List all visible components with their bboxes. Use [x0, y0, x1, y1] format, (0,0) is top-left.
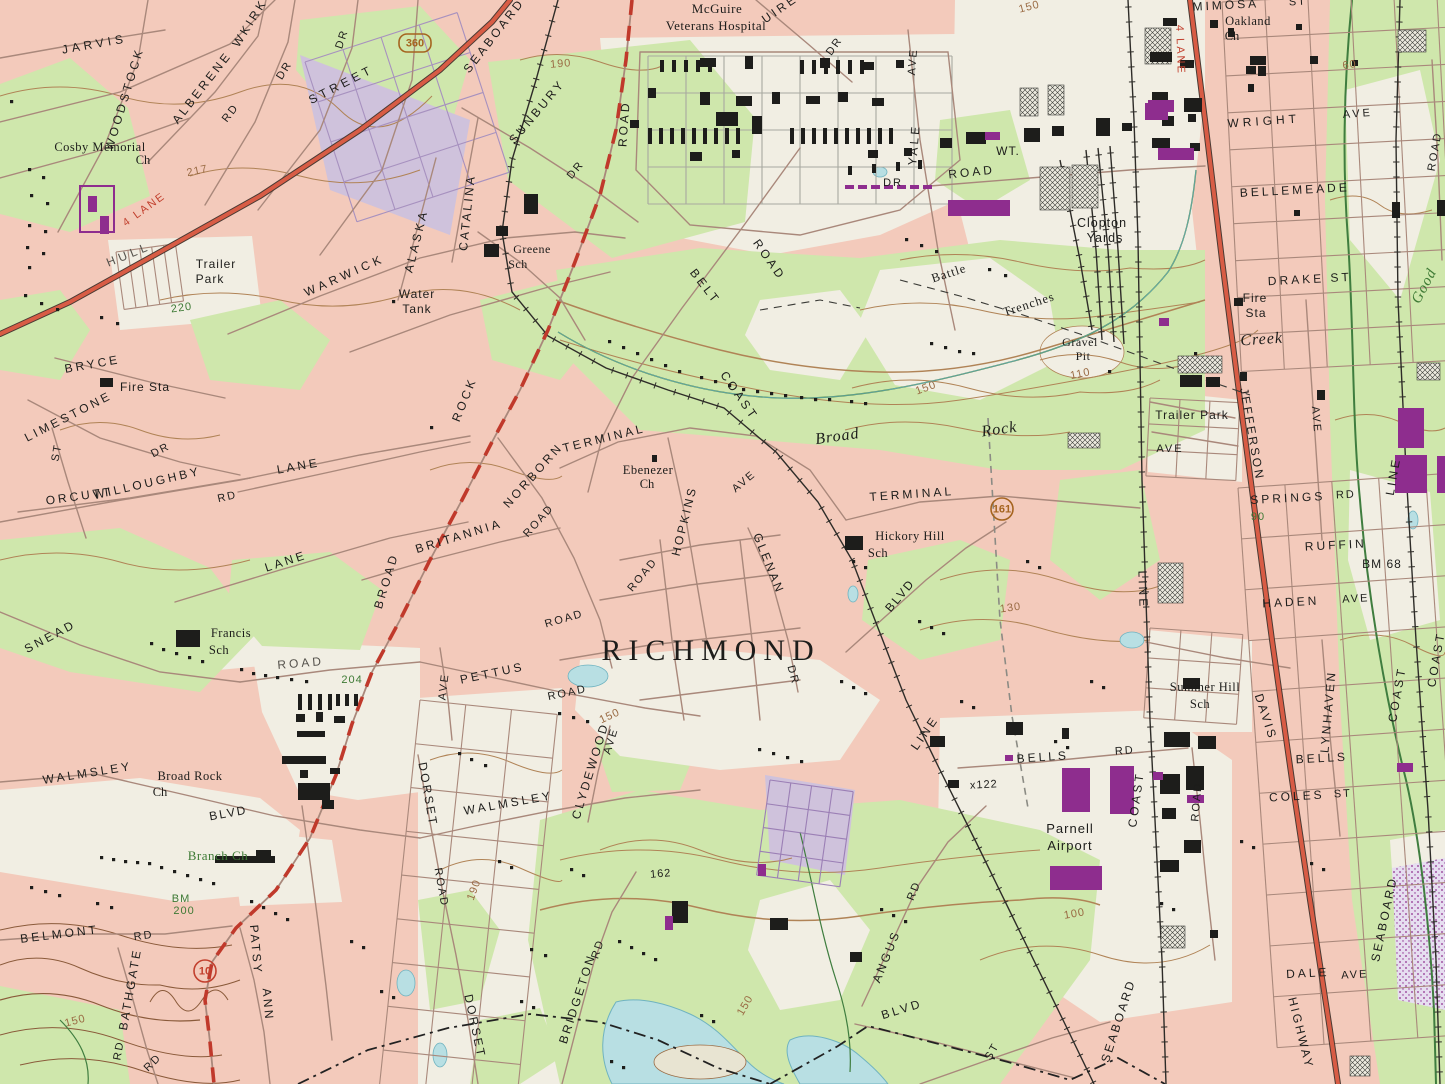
map-label: Hickory Hill: [875, 529, 945, 543]
building: [1210, 20, 1218, 28]
house-dot: [960, 700, 963, 703]
house-dot: [892, 914, 895, 917]
building-row-unit: [834, 128, 838, 144]
house-dot: [162, 648, 165, 651]
building: [298, 783, 330, 800]
map-label: 162: [650, 867, 672, 881]
house-dot: [124, 860, 127, 863]
large-building-hatched: [1417, 363, 1440, 380]
map-label: WT.: [996, 144, 1020, 158]
house-dot: [40, 302, 43, 305]
building: [1184, 840, 1201, 853]
building: [1437, 200, 1445, 216]
house-dot: [582, 874, 585, 877]
map-label: Trailer: [196, 257, 237, 271]
house-dot: [1240, 840, 1243, 843]
building: [752, 116, 762, 134]
building: [1296, 24, 1302, 30]
building: [1150, 52, 1172, 62]
building-row-unit: [345, 694, 349, 706]
house-dot: [1102, 686, 1105, 689]
house-dot: [712, 1020, 715, 1023]
map-label: 90: [1251, 511, 1265, 523]
building-row-unit: [725, 128, 729, 144]
building-row-unit: [856, 128, 860, 144]
map-label: DALE: [1286, 965, 1330, 981]
building-row-unit: [800, 60, 804, 74]
building-photorevised: [1397, 763, 1413, 772]
house-dot: [700, 376, 703, 379]
house-dot: [305, 680, 308, 683]
house-dot: [758, 748, 761, 751]
railroad-tick: [1095, 155, 1101, 156]
building-row-unit: [790, 128, 794, 144]
building-photorevised: [985, 132, 1000, 140]
building: [838, 92, 848, 102]
map-label: Trailer Park: [1155, 408, 1229, 422]
building-photorevised: [758, 864, 766, 876]
house-dot: [498, 860, 501, 863]
map-label: LINE: [1135, 570, 1150, 609]
building-row-unit: [845, 128, 849, 144]
building-row-unit: [867, 128, 871, 144]
house-dot: [654, 958, 657, 961]
map-label: Fire Sta: [120, 380, 170, 394]
building-row-unit: [824, 60, 828, 74]
building: [1250, 56, 1266, 65]
building: [322, 800, 334, 809]
railroad-tick: [1101, 214, 1107, 215]
building: [1258, 66, 1266, 76]
house-dot: [1194, 352, 1197, 355]
building: [330, 768, 340, 774]
pond: [568, 665, 608, 687]
building: [1024, 128, 1040, 142]
building: [690, 152, 702, 161]
house-dot: [664, 364, 667, 367]
house-dot: [920, 244, 923, 247]
map-label: Ch: [640, 477, 655, 491]
building: [100, 378, 113, 387]
house-dot: [110, 906, 113, 909]
house-dot: [610, 1060, 613, 1063]
building: [496, 226, 508, 236]
house-dot: [290, 678, 293, 681]
house-dot: [240, 668, 243, 671]
building-photorevised: [100, 216, 109, 234]
map-label: AVE: [1341, 968, 1369, 981]
building-photorevised: [1062, 768, 1090, 812]
route-badge-number: 360: [406, 38, 424, 50]
house-dot: [1172, 908, 1175, 911]
pond: [1120, 632, 1144, 648]
building-row-unit: [889, 128, 893, 144]
building-photorevised: [910, 185, 919, 189]
large-building-hatched: [1020, 88, 1038, 116]
building: [1246, 66, 1256, 74]
building-row-unit: [696, 60, 700, 72]
house-dot: [1252, 846, 1255, 849]
map-label: DR: [883, 177, 903, 189]
building-row-unit: [684, 60, 688, 72]
map-label: Pit: [1076, 349, 1091, 363]
house-dot: [622, 346, 625, 349]
building: [316, 712, 323, 722]
house-dot: [262, 906, 265, 909]
large-building-hatched: [1072, 165, 1098, 208]
building-photorevised: [1005, 755, 1013, 761]
house-dot: [905, 238, 908, 241]
house-dot: [392, 300, 395, 303]
house-dot: [800, 760, 803, 763]
building-row-unit: [692, 128, 696, 144]
house-dot: [392, 996, 395, 999]
house-dot: [642, 952, 645, 955]
map-label: COLES: [1269, 788, 1325, 805]
house-dot: [173, 870, 176, 873]
building: [1392, 202, 1400, 218]
building: [1062, 728, 1069, 739]
building-row-unit: [708, 60, 712, 72]
route-badge-number: 10: [199, 966, 211, 978]
house-dot: [756, 390, 759, 393]
house-dot: [840, 680, 843, 683]
house-dot: [935, 250, 938, 253]
large-building-hatched: [1161, 926, 1185, 948]
house-dot: [944, 346, 947, 349]
building: [850, 952, 862, 962]
house-dot: [586, 720, 589, 723]
building: [524, 194, 538, 214]
building: [1162, 808, 1176, 819]
building: [1122, 123, 1132, 131]
building: [772, 92, 780, 104]
house-dot: [942, 632, 945, 635]
building: [770, 918, 788, 930]
house-dot: [484, 764, 487, 767]
map-label: AVE: [1156, 443, 1183, 455]
house-dot: [30, 886, 33, 889]
house-dot: [678, 370, 681, 373]
map-label: McGuire: [692, 1, 742, 16]
house-dot: [850, 400, 853, 403]
house-dot: [988, 268, 991, 271]
house-dot: [772, 752, 775, 755]
map-label: Sta: [1245, 306, 1266, 320]
map-label: Sch: [508, 257, 528, 271]
building: [1152, 138, 1170, 148]
house-dot: [136, 861, 139, 864]
house-dot: [96, 902, 99, 905]
building: [940, 138, 952, 148]
building-row-unit: [298, 694, 302, 710]
house-dot: [1054, 740, 1057, 743]
house-dot: [570, 868, 573, 871]
house-dot: [864, 402, 867, 405]
map-label: Oakland: [1225, 14, 1271, 28]
building: [1210, 930, 1218, 938]
map-label: RD: [1114, 744, 1135, 757]
lake-island: [654, 1045, 746, 1079]
map-label: Sch: [1190, 697, 1211, 711]
building: [1240, 372, 1247, 381]
building: [966, 132, 986, 144]
map-label: ST: [1334, 788, 1353, 801]
house-dot: [650, 358, 653, 361]
building-photorevised: [948, 200, 1010, 216]
topo-map-svg: 36016110JARVISWOODSTOCKALBERENERDWKIRKDR…: [0, 0, 1445, 1084]
map-label: Greene: [513, 242, 551, 256]
house-dot: [532, 1006, 535, 1009]
map-label: 190: [550, 57, 572, 71]
building-row-unit: [801, 128, 805, 144]
house-dot: [714, 380, 717, 383]
large-building-hatched: [1040, 167, 1070, 210]
map-label: 4 LANE: [1173, 25, 1187, 75]
topo-map-scan: 36016110JARVISWOODSTOCKALBERENERDWKIRKDR…: [0, 0, 1445, 1084]
map-label: Ch: [153, 785, 168, 799]
house-dot: [112, 858, 115, 861]
house-dot: [958, 350, 961, 353]
map-label: Water: [399, 287, 436, 301]
building: [736, 96, 752, 106]
house-dot: [1038, 566, 1041, 569]
map-label: Yards: [1087, 231, 1124, 245]
house-dot: [1090, 680, 1093, 683]
building: [732, 150, 740, 158]
map-label: BM 68: [1362, 557, 1402, 571]
house-dot: [918, 620, 921, 623]
house-dot: [160, 866, 163, 869]
house-dot: [510, 866, 513, 869]
house-dot: [26, 246, 29, 249]
house-dot: [770, 392, 773, 395]
large-building-hatched: [1048, 85, 1064, 115]
map-label: Broad Rock: [157, 769, 222, 783]
house-dot: [44, 230, 47, 233]
house-dot: [572, 716, 575, 719]
house-dot: [430, 426, 433, 429]
railroad-tick: [1084, 157, 1090, 158]
building-photorevised: [1145, 103, 1168, 120]
house-dot: [264, 674, 267, 677]
building-row-unit: [736, 128, 740, 144]
map-label: Gravel: [1062, 335, 1098, 349]
house-dot: [530, 948, 533, 951]
house-dot: [276, 676, 279, 679]
house-dot: [380, 990, 383, 993]
house-dot: [28, 224, 31, 227]
railroad-tick: [1098, 185, 1104, 186]
map-label: Ch: [1225, 29, 1240, 43]
house-dot: [864, 566, 867, 569]
map-label: 200: [173, 905, 194, 917]
building: [1184, 98, 1202, 112]
building: [948, 780, 959, 788]
map-label: AVE: [906, 48, 920, 76]
building-row-unit: [648, 128, 652, 144]
map-label: Francis: [211, 626, 251, 640]
building: [1310, 56, 1318, 64]
house-dot: [1108, 370, 1111, 373]
building-row-unit: [848, 60, 852, 74]
house-dot: [100, 316, 103, 319]
house-dot: [828, 398, 831, 401]
map-label: AVE: [1342, 107, 1373, 121]
house-dot: [212, 882, 215, 885]
house-dot: [150, 642, 153, 645]
building: [1006, 722, 1023, 735]
house-dot: [42, 252, 45, 255]
map-label: 204: [341, 674, 362, 686]
building-row-unit: [703, 128, 707, 144]
building: [672, 901, 688, 923]
house-dot: [175, 652, 178, 655]
building: [1188, 114, 1196, 122]
building: [176, 630, 200, 647]
map-label: Fire: [1243, 291, 1268, 305]
map-label: Creek: [1240, 330, 1284, 350]
building: [745, 56, 753, 69]
building: [806, 96, 820, 104]
house-dot: [800, 396, 803, 399]
house-dot: [116, 322, 119, 325]
house-dot: [470, 758, 473, 761]
map-label: RD: [1336, 488, 1356, 501]
house-dot: [42, 176, 45, 179]
map-label: Tank: [402, 302, 431, 316]
map-label: 60: [1342, 58, 1358, 72]
map-label: Summer Hill: [1170, 680, 1240, 694]
house-dot: [618, 940, 621, 943]
house-dot: [56, 308, 59, 311]
building-photorevised: [1158, 148, 1194, 160]
house-dot: [1026, 560, 1029, 563]
building: [716, 112, 738, 126]
building-row-unit: [836, 60, 840, 74]
house-dot: [250, 900, 253, 903]
house-dot: [852, 560, 855, 563]
map-label: Park: [196, 272, 225, 286]
house-dot: [972, 706, 975, 709]
large-building-hatched: [1158, 563, 1183, 603]
house-dot: [852, 686, 855, 689]
building-row-unit: [318, 694, 322, 710]
house-dot: [186, 874, 189, 877]
house-dot: [148, 862, 151, 865]
building: [872, 164, 876, 173]
map-label: Veterans Hospital: [666, 18, 767, 33]
map-label: HADEN: [1262, 594, 1320, 611]
house-dot: [100, 856, 103, 859]
railroad-tick: [1092, 246, 1098, 247]
building-row-unit: [308, 694, 312, 710]
building-row-unit: [878, 128, 882, 144]
house-dot: [784, 394, 787, 397]
map-label: Branch Ch: [188, 848, 248, 863]
house-dot: [700, 1014, 703, 1017]
house-dot: [1004, 274, 1007, 277]
building: [648, 88, 656, 98]
building-photorevised: [1159, 318, 1169, 326]
map-label: Ch: [136, 153, 151, 167]
building: [700, 92, 710, 105]
building-photorevised: [871, 185, 880, 189]
building-row-unit: [336, 694, 340, 706]
house-dot: [1322, 868, 1325, 871]
building-photorevised: [923, 185, 932, 189]
house-dot: [201, 660, 204, 663]
house-dot: [630, 946, 633, 949]
building: [1206, 377, 1220, 387]
building: [630, 120, 639, 128]
house-dot: [252, 672, 255, 675]
building: [334, 716, 345, 723]
building-row-unit: [660, 60, 664, 72]
house-dot: [199, 878, 202, 881]
railroad-tick: [1100, 199, 1106, 200]
house-dot: [544, 954, 547, 957]
house-dot: [10, 100, 13, 103]
building-row-unit: [860, 60, 864, 74]
building-row-unit: [670, 128, 674, 144]
house-dot: [814, 398, 817, 401]
building-photorevised: [858, 185, 867, 189]
house-dot: [972, 352, 975, 355]
building: [296, 714, 305, 722]
house-dot: [608, 340, 611, 343]
building: [868, 150, 878, 158]
map-label: Sch: [209, 643, 230, 657]
large-building-hatched: [1398, 30, 1426, 52]
house-dot: [58, 894, 61, 897]
large-building-hatched: [1178, 356, 1222, 373]
house-dot: [362, 946, 365, 949]
building: [845, 536, 863, 550]
house-dot: [46, 202, 49, 205]
map-label: Ebenezer: [623, 463, 674, 477]
building-photorevised: [1153, 772, 1163, 780]
house-dot: [786, 756, 789, 759]
route-badge-number: 161: [993, 504, 1011, 516]
building: [1052, 126, 1064, 136]
pond: [397, 970, 415, 996]
map-label: RICHMOND: [601, 634, 820, 667]
house-dot: [864, 692, 867, 695]
house-dot: [286, 918, 289, 921]
house-dot: [274, 912, 277, 915]
map-label: x122: [970, 778, 998, 791]
building-photorevised: [1398, 408, 1424, 448]
map-label: AVE: [1309, 406, 1323, 434]
house-dot: [622, 1066, 625, 1069]
building: [930, 736, 945, 747]
map-label: BELLS: [1295, 750, 1348, 767]
map-label: Sch: [868, 546, 889, 560]
building: [1180, 375, 1202, 387]
building-photorevised: [845, 185, 854, 189]
house-dot: [558, 712, 561, 715]
map-label: ANN: [260, 988, 277, 1022]
building: [652, 455, 657, 462]
building: [1198, 736, 1216, 749]
house-dot: [28, 168, 31, 171]
house-dot: [458, 752, 461, 755]
building: [1160, 860, 1179, 872]
building-photorevised: [1437, 456, 1445, 493]
building: [1317, 390, 1325, 400]
building-row-unit: [354, 694, 358, 706]
